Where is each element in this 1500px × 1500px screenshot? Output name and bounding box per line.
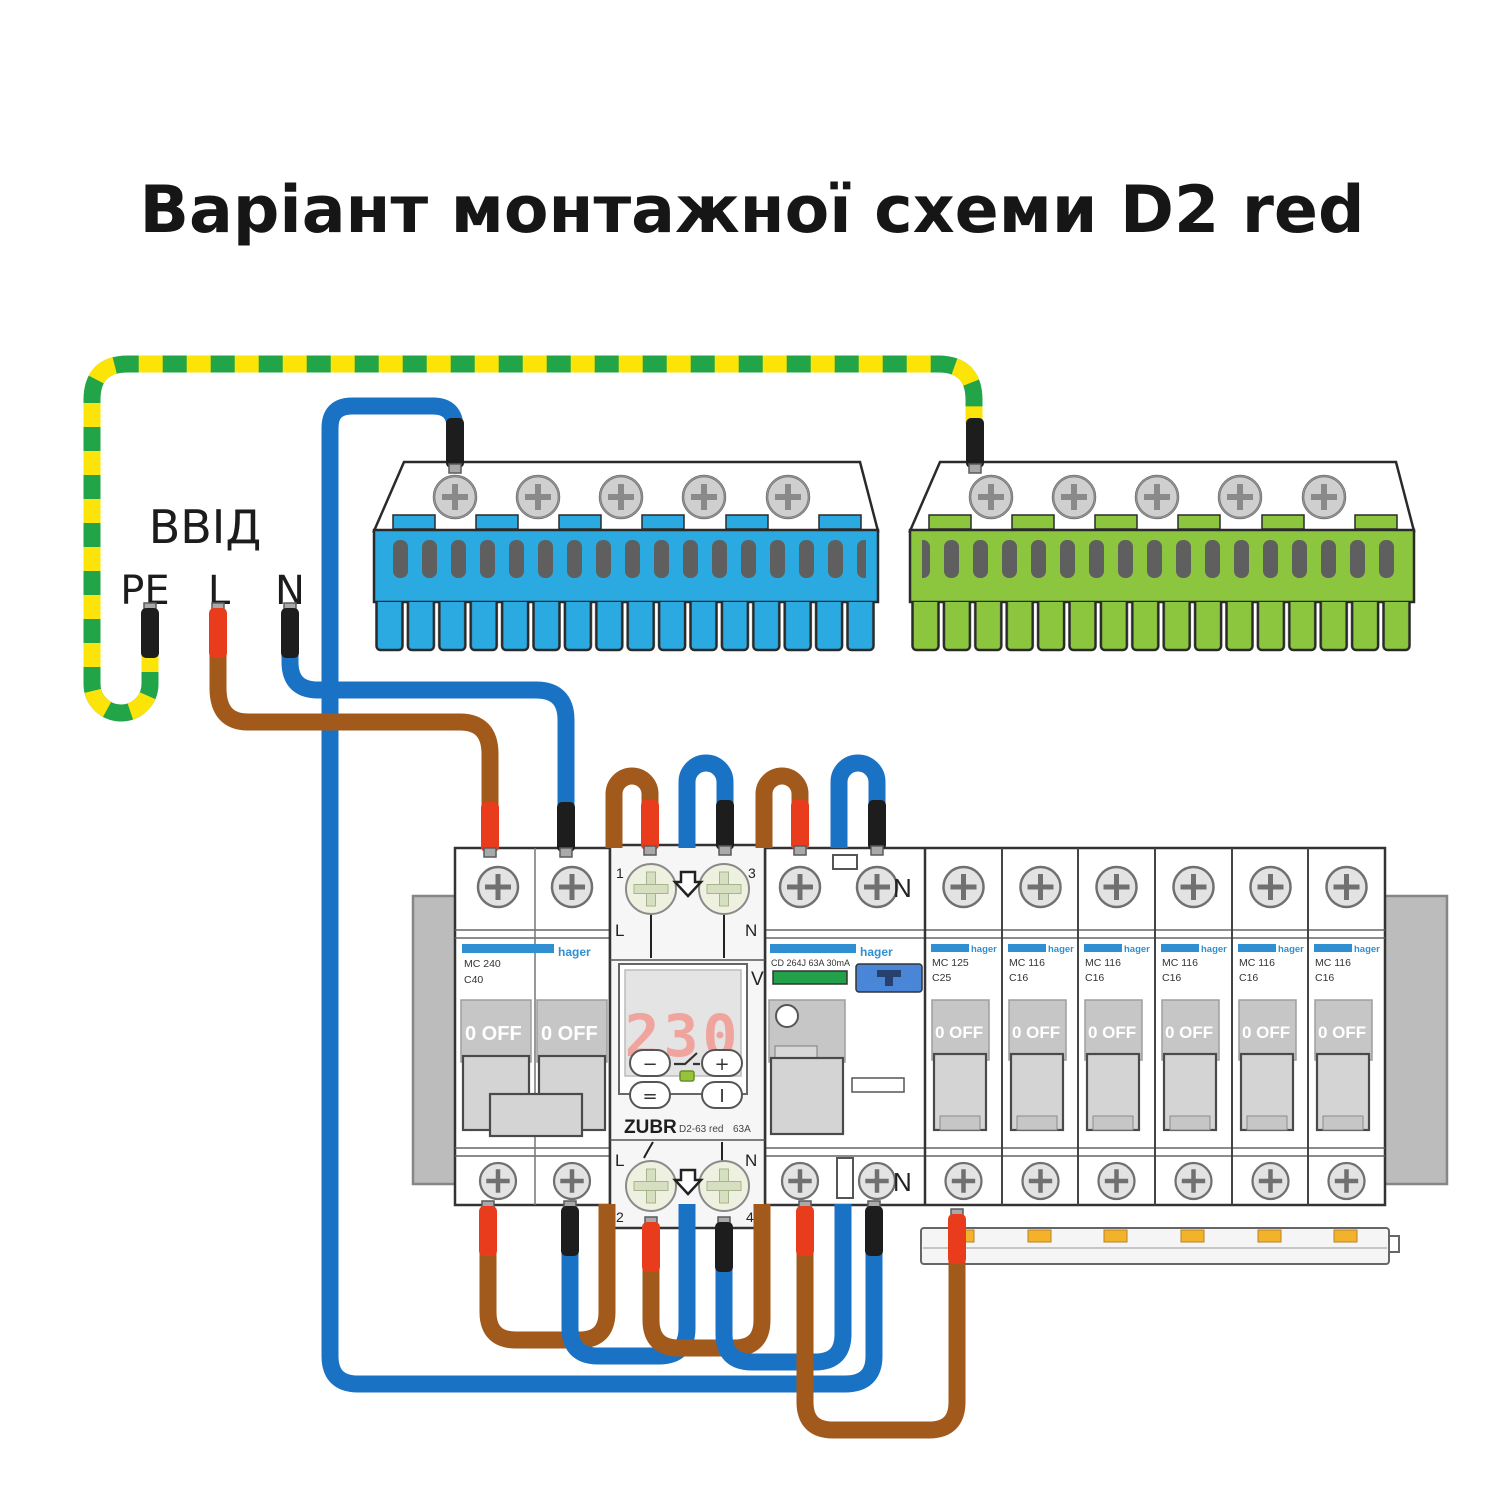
- relay-terminal-3: 3: [748, 865, 756, 881]
- earth-busbar-tip: [966, 418, 984, 473]
- relay-terminal-4: 4: [746, 1209, 754, 1225]
- wiring-diagram-page: Варіант монтажної схеми D2 red ВВІД PE L…: [0, 0, 1500, 1500]
- relay-n-top: N: [745, 921, 757, 940]
- neutral-tip: [281, 603, 299, 658]
- busbar-screw: [434, 476, 476, 518]
- relay-n-bottom: N: [745, 1151, 757, 1170]
- mcb-rating: C16: [1085, 972, 1104, 984]
- relay-minus-label: −: [642, 1054, 657, 1075]
- main-breaker-brand: hager: [558, 945, 591, 959]
- rcd-model: CD 264J 63A 30mA: [771, 958, 850, 968]
- mcb-model: MC 125: [932, 957, 969, 969]
- mcb-toggle-state: 0 OFF: [935, 1023, 983, 1042]
- relay-volt-unit: V: [751, 969, 764, 990]
- pe-tip: [141, 603, 159, 658]
- relay-terminal-1: 1: [616, 865, 624, 881]
- main-breaker-toggle-state: 0 OFF: [465, 1023, 522, 1045]
- relay-plus-label: +: [714, 1054, 729, 1075]
- mcb-brand: hager: [1278, 944, 1304, 955]
- mcb-rating: C16: [1009, 972, 1028, 984]
- neutral-busbar-tip: [446, 418, 464, 473]
- mcb-toggle-state: 0 OFF: [1242, 1023, 1290, 1042]
- mcb-rating: C16: [1315, 972, 1334, 984]
- relay-screw: [626, 864, 676, 914]
- mcb-brand: hager: [1124, 944, 1150, 955]
- relay-terminal-2: 2: [616, 1209, 624, 1225]
- mcb-model: MC 116: [1315, 957, 1351, 969]
- page-title: Варіант монтажної схеми D2 red: [139, 173, 1364, 248]
- main-breaker-toggle-state: 0 OFF: [541, 1023, 598, 1045]
- mcb-model: MC 116: [1239, 957, 1275, 969]
- rcd-toggle: [771, 1058, 843, 1134]
- mcb-brand: hager: [971, 944, 997, 955]
- input-label: ВВІД: [149, 500, 262, 554]
- mcb-toggle-state: 0 OFF: [1165, 1023, 1213, 1042]
- relay-brand: ZUBR: [624, 1117, 677, 1138]
- relay-power-label: I: [719, 1086, 724, 1107]
- relay-l-top: L: [615, 921, 624, 940]
- diagram-canvas: Варіант монтажної схеми D2 red ВВІД PE L…: [0, 0, 1500, 1500]
- voltage-relay: 1 3 L N 230 V − + = I ZUBR D2-63 red 63A…: [610, 845, 765, 1228]
- line-tip: [209, 603, 227, 658]
- main-breaker-rating: C40: [464, 974, 483, 986]
- relay-model: D2-63 red: [679, 1124, 723, 1135]
- rcd-n-label-top: N: [893, 873, 912, 903]
- mcb-toggle-state: 0 OFF: [1088, 1023, 1136, 1042]
- mcb-brand: hager: [1048, 944, 1074, 955]
- mcb-model: MC 116: [1162, 957, 1198, 969]
- mcb-rating: C16: [1239, 972, 1258, 984]
- mcb-brand: hager: [1354, 944, 1380, 955]
- rcd-indicator-window: [776, 1005, 798, 1027]
- comb-busbar: [921, 1228, 1399, 1264]
- mcb-brand: hager: [1201, 944, 1227, 955]
- mcb-model: MC 116: [1085, 957, 1121, 969]
- earth-busbar: [910, 462, 1414, 652]
- mcb-rating: C16: [1162, 972, 1181, 984]
- mcb-rating: C25: [932, 972, 951, 984]
- mcb-toggle-state: 0 OFF: [1012, 1023, 1060, 1042]
- neutral-busbar: [374, 462, 878, 652]
- main-breaker-model: MC 240: [464, 958, 501, 970]
- relay-led: [680, 1071, 694, 1081]
- comb-feed-tip: [948, 1209, 966, 1264]
- mcb-toggle-state: 0 OFF: [1318, 1023, 1366, 1042]
- rcd-brand: hager: [860, 945, 893, 959]
- rcd-n-label-bottom: N: [893, 1167, 912, 1197]
- mcb-model: MC 116: [1009, 957, 1045, 969]
- rcd-green-indicator: [773, 971, 847, 984]
- relay-current: 63A: [733, 1124, 751, 1135]
- relay-menu-label: =: [642, 1086, 657, 1107]
- relay-l-bottom: L: [615, 1151, 624, 1170]
